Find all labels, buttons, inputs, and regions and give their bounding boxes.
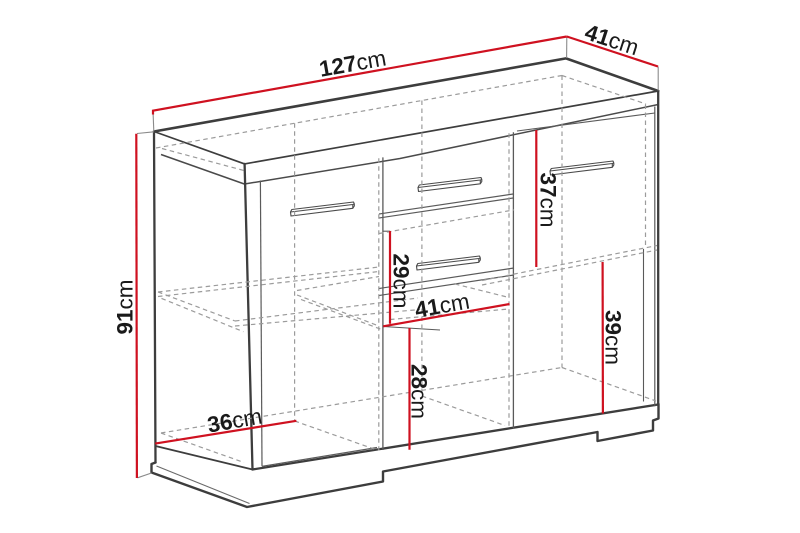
svg-text:39cm: 39cm	[601, 310, 626, 365]
svg-text:28cm: 28cm	[407, 364, 432, 419]
svg-text:29cm: 29cm	[389, 253, 414, 308]
svg-text:91cm: 91cm	[113, 279, 138, 334]
svg-text:37cm: 37cm	[536, 172, 561, 227]
